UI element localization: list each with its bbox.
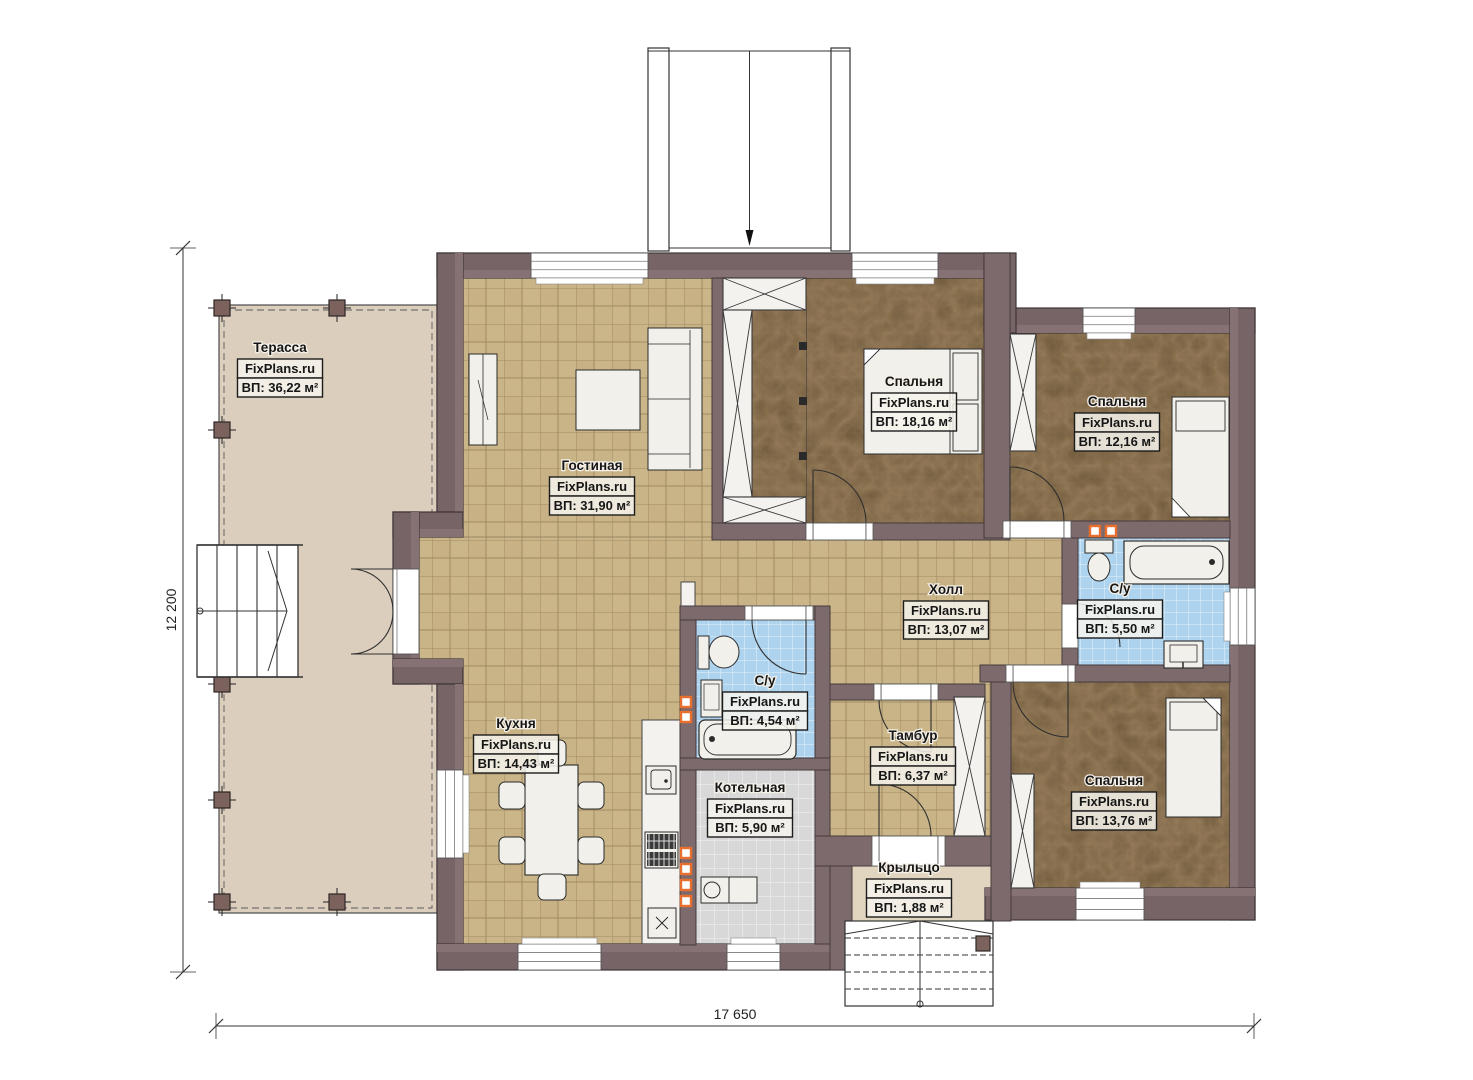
svg-text:FixPlans.ru: FixPlans.ru (1082, 415, 1152, 430)
svg-text:Крыльцо: Крыльцо (878, 860, 939, 875)
svg-text:ВП: 13,76 м²: ВП: 13,76 м² (1076, 813, 1153, 828)
svg-text:С/у: С/у (1109, 581, 1131, 596)
svg-text:FixPlans.ru: FixPlans.ru (874, 881, 944, 896)
svg-text:Спальня: Спальня (1088, 394, 1146, 409)
svg-text:ВП: 5,90 м²: ВП: 5,90 м² (715, 820, 785, 835)
svg-text:ВП: 36,22 м²: ВП: 36,22 м² (242, 380, 319, 395)
svg-text:Котельная: Котельная (715, 780, 786, 795)
svg-text:FixPlans.ru: FixPlans.ru (879, 395, 949, 410)
svg-text:ВП: 31,90 м²: ВП: 31,90 м² (554, 498, 631, 513)
svg-text:FixPlans.ru: FixPlans.ru (481, 737, 551, 752)
svg-text:ВП: 18,16 м²: ВП: 18,16 м² (876, 414, 953, 429)
svg-text:FixPlans.ru: FixPlans.ru (730, 694, 800, 709)
svg-text:FixPlans.ru: FixPlans.ru (1079, 794, 1149, 809)
svg-text:ВП: 4,54 м²: ВП: 4,54 м² (730, 713, 800, 728)
svg-text:FixPlans.ru: FixPlans.ru (911, 603, 981, 618)
svg-text:FixPlans.ru: FixPlans.ru (557, 479, 627, 494)
svg-text:FixPlans.ru: FixPlans.ru (1085, 602, 1155, 617)
svg-text:Тамбур: Тамбур (889, 728, 938, 743)
svg-text:Холл: Холл (929, 582, 963, 597)
svg-text:Спальня: Спальня (1085, 773, 1143, 788)
svg-text:Кухня: Кухня (496, 716, 535, 731)
svg-text:Гостиная: Гостиная (561, 458, 622, 473)
svg-text:С/у: С/у (754, 673, 776, 688)
svg-text:ВП: 6,37 м²: ВП: 6,37 м² (878, 768, 948, 783)
svg-text:Спальня: Спальня (885, 374, 943, 389)
svg-text:Терасса: Терасса (253, 340, 307, 355)
svg-text:ВП: 13,07 м²: ВП: 13,07 м² (908, 622, 985, 637)
svg-text:ВП: 14,43 м²: ВП: 14,43 м² (478, 756, 555, 771)
svg-text:FixPlans.ru: FixPlans.ru (715, 801, 785, 816)
svg-text:ВП: 12,16 м²: ВП: 12,16 м² (1079, 434, 1156, 449)
svg-text:FixPlans.ru: FixPlans.ru (245, 361, 315, 376)
svg-text:12 200: 12 200 (163, 588, 179, 631)
svg-text:ВП: 1,88 м²: ВП: 1,88 м² (874, 900, 944, 915)
svg-text:17 650: 17 650 (714, 1006, 757, 1022)
svg-text:FixPlans.ru: FixPlans.ru (878, 749, 948, 764)
svg-text:ВП: 5,50 м²: ВП: 5,50 м² (1085, 621, 1155, 636)
